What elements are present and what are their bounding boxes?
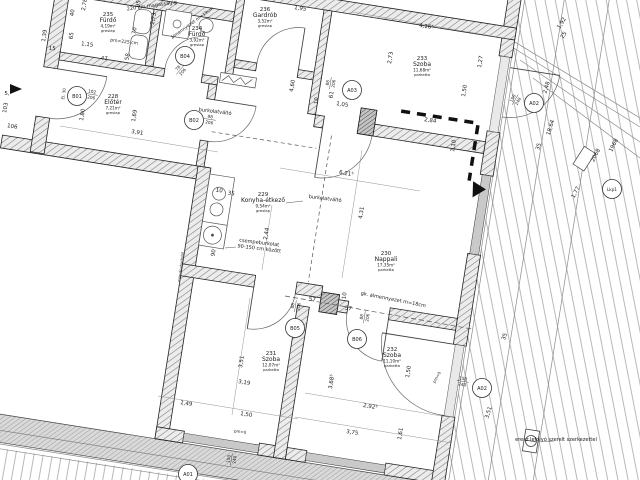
svg-text:B06: B06 [352,337,362,343]
dimension-label: 15 [48,46,56,53]
dimension-label: 35 [227,191,235,198]
svg-text:A01: A01 [183,472,193,478]
svg-text:206: 206 [364,313,370,322]
dimension-label: 2,73 [387,51,395,65]
svg-text:A03: A03 [347,88,357,94]
svg-text:90: 90 [211,248,218,256]
svg-text:parketta: parketta [414,72,430,77]
svg-text:1,69: 1,69 [131,109,139,123]
svg-text:1,49: 1,49 [180,400,194,408]
dimension-label: 1,69 [131,109,139,123]
svg-text:greslap: greslap [106,110,121,115]
svg-text:206: 206 [205,119,214,125]
dimension-label: 3,19 [238,379,252,387]
svg-text:1,61: 1,61 [397,427,405,440]
svg-text:35: 35 [227,191,235,198]
svg-text:1,05: 1,05 [336,101,350,109]
svg-text:2,84: 2,84 [424,117,438,125]
room-label: 228Előtér7,21m²greslap [104,94,122,115]
dimension-label: 1,50 [405,365,413,379]
svg-text:3,19: 3,19 [238,379,252,387]
dimension-label: 1,05 [336,101,350,109]
dimension-label: 1,50 [240,411,254,419]
dimension-label: 1,61 [397,427,405,440]
door-tag: Lkp1 [603,180,622,199]
svg-text:15: 15 [48,46,56,53]
svg-text:greslap: greslap [256,208,271,213]
annotation: burkolatváltó [308,193,342,204]
dimension-label: 57 [308,297,316,304]
dimension-label: 2,92⁵ [363,402,378,411]
svg-text:greslap: greslap [190,42,205,47]
floorplan-svg: 235Fürdő4,19m²greslap234Fürdő3,92m²gresl… [0,0,640,480]
door-tag: A03 [343,81,362,100]
dimension-label: 3,91 [131,129,144,137]
dimension-label: 6,21⁵ [339,169,354,178]
svg-text:88: 88 [359,313,365,319]
svg-text:6,21⁵: 6,21⁵ [339,169,354,178]
svg-text:3,68⁵: 3,68⁵ [327,374,336,389]
dimension-label: 1,49 [180,400,194,408]
svg-text:1,95: 1,95 [294,5,308,13]
svg-text:3,91: 3,91 [131,129,144,137]
dimension-label: 3,75 [346,429,360,437]
annotation: burkolatváltó [198,106,232,117]
svg-text:10: 10 [314,96,321,104]
dimension-label: 4,60 [289,79,297,93]
room-label: 235Fürdő4,19m²greslap [100,12,117,33]
svg-text:1,10: 1,10 [450,139,458,153]
svg-text:2,44: 2,44 [263,227,271,241]
door-tag: B02 [185,111,204,130]
svg-text:61: 61 [329,91,336,99]
svg-text:65: 65 [69,31,76,39]
dimension-label: 1,27 [477,55,485,69]
room-label: 230Nappali17,35m²parketta [375,251,398,272]
svg-text:40: 40 [70,8,77,16]
dimension-label: 65 [69,31,76,39]
pillar [319,292,340,315]
svg-text:greslap: greslap [101,28,116,33]
svg-text:4,60: 4,60 [289,79,297,93]
room-label: 232Szoba11,10m²parketta [383,347,401,368]
dimension-label: 5, [4,91,9,97]
dimension-label: 57 [344,306,352,313]
svg-text:1,80: 1,80 [79,108,87,122]
svg-text:B05: B05 [290,326,300,332]
svg-text:106: 106 [7,123,19,131]
door-tag: B06 [348,330,367,349]
annotation: eresz lefolyó szerelt szerkezettel [515,436,597,443]
dimension-label: 1,80 [79,108,87,122]
dimension-label: 1,50 [461,84,469,98]
annotation: El. 30 [60,87,67,99]
svg-text:pm=0: pm=0 [431,370,442,384]
dimension-label: 2,84 [424,117,438,125]
svg-text:206: 206 [87,94,96,100]
svg-text:burkolatváltó: burkolatváltó [198,106,232,117]
svg-text:1,50: 1,50 [240,411,254,419]
svg-text:gk. álmennyezet m=18cm: gk. álmennyezet m=18cm [360,290,427,310]
door-tag: B05 [286,319,305,338]
annotation: pm=0 [431,370,442,384]
dimension-label: 4,31 [358,206,366,219]
radiator [219,72,256,88]
door-size-label: 88206 [203,113,217,126]
dimension-label: 1,10 [450,139,458,153]
room-label: 233Szoba11,68m²parketta [413,56,431,77]
dimension-label: 10 [342,291,349,299]
floor-plan-canvas: 235Fürdő4,19m²greslap234Fürdő3,92m²gresl… [0,0,640,480]
svg-text:88: 88 [325,79,331,85]
dimension-label: 3,51 [238,355,246,368]
bidet [128,34,149,60]
svg-text:5,: 5, [4,91,9,97]
dimension-label: 106 [7,123,19,131]
svg-text:4,31: 4,31 [358,206,366,219]
dimension-label: 10 [314,96,321,104]
dimension-label: 2,78 [81,0,89,11]
dimension-label: 90 [211,248,218,256]
door-size-label: 88206 [324,76,337,90]
annotation: gk. álmennyezet m=18cm [360,290,427,310]
room-label: 231Szoba12,07m²parketta [262,351,280,372]
svg-text:burkolatváltó: burkolatváltó [308,193,342,204]
svg-text:A02: A02 [477,386,487,392]
svg-text:10: 10 [342,291,349,299]
dimension-label: 61 [329,91,336,99]
door-size-label: 102206 [85,88,99,101]
svg-text:3,51: 3,51 [238,355,246,368]
svg-text:greslap: greslap [258,23,273,28]
svg-text:pm=0: pm=0 [234,428,247,435]
svg-text:2,78: 2,78 [81,0,89,11]
svg-text:47: 47 [100,56,108,63]
svg-text:1,27: 1,27 [477,55,485,69]
section-flag [10,84,22,94]
door-size-label: 88206 [358,310,371,324]
dimension-label: 3,68⁵ [327,374,336,389]
dimension-label: 103 [2,102,10,114]
svg-text:57: 57 [308,297,316,304]
svg-text:2,92⁵: 2,92⁵ [363,402,378,411]
svg-text:1,15: 1,15 [81,41,94,49]
svg-text:57: 57 [344,306,352,313]
door-tag: B01 [68,87,87,106]
door-tag: A01 [179,465,198,480]
room-label: 229Konyha-étkező9,54m²greslap [241,192,285,213]
svg-text:1,50: 1,50 [461,84,469,98]
svg-text:103: 103 [2,102,10,114]
dimension-label: 1,15 [81,41,94,49]
door-tag: B04 [176,47,195,66]
door-tag: A02 [525,94,544,113]
svg-text:3,75: 3,75 [346,429,360,437]
svg-text:206: 206 [330,79,336,88]
svg-text:eresz lefolyó szerelt szerkeze: eresz lefolyó szerelt szerkezettel [515,436,597,443]
svg-text:B04: B04 [180,54,190,60]
svg-text:Lkp1: Lkp1 [607,187,617,192]
dimension-label: 2,44 [263,227,271,241]
annotation: pm=0 [234,428,247,435]
room-label: 236Gardrób3,52m²greslap [253,7,278,28]
svg-text:1,50: 1,50 [405,365,413,379]
svg-text:parketta: parketta [378,267,394,272]
door-tag: A02 [473,379,492,398]
svg-text:El. 30: El. 30 [60,87,67,99]
svg-text:88: 88 [290,302,296,308]
svg-text:parketta: parketta [384,363,400,368]
svg-text:B01: B01 [72,94,82,100]
svg-text:B02: B02 [189,118,199,124]
dimension-label: 47 [100,56,108,63]
svg-text:parketta: parketta [263,367,279,372]
svg-text:2,73: 2,73 [387,51,395,65]
door-size-label: 88206 [289,299,302,313]
dimension-label: 40 [70,8,77,16]
svg-text:A02: A02 [529,101,539,107]
dimension-label: 1,95 [294,5,308,13]
